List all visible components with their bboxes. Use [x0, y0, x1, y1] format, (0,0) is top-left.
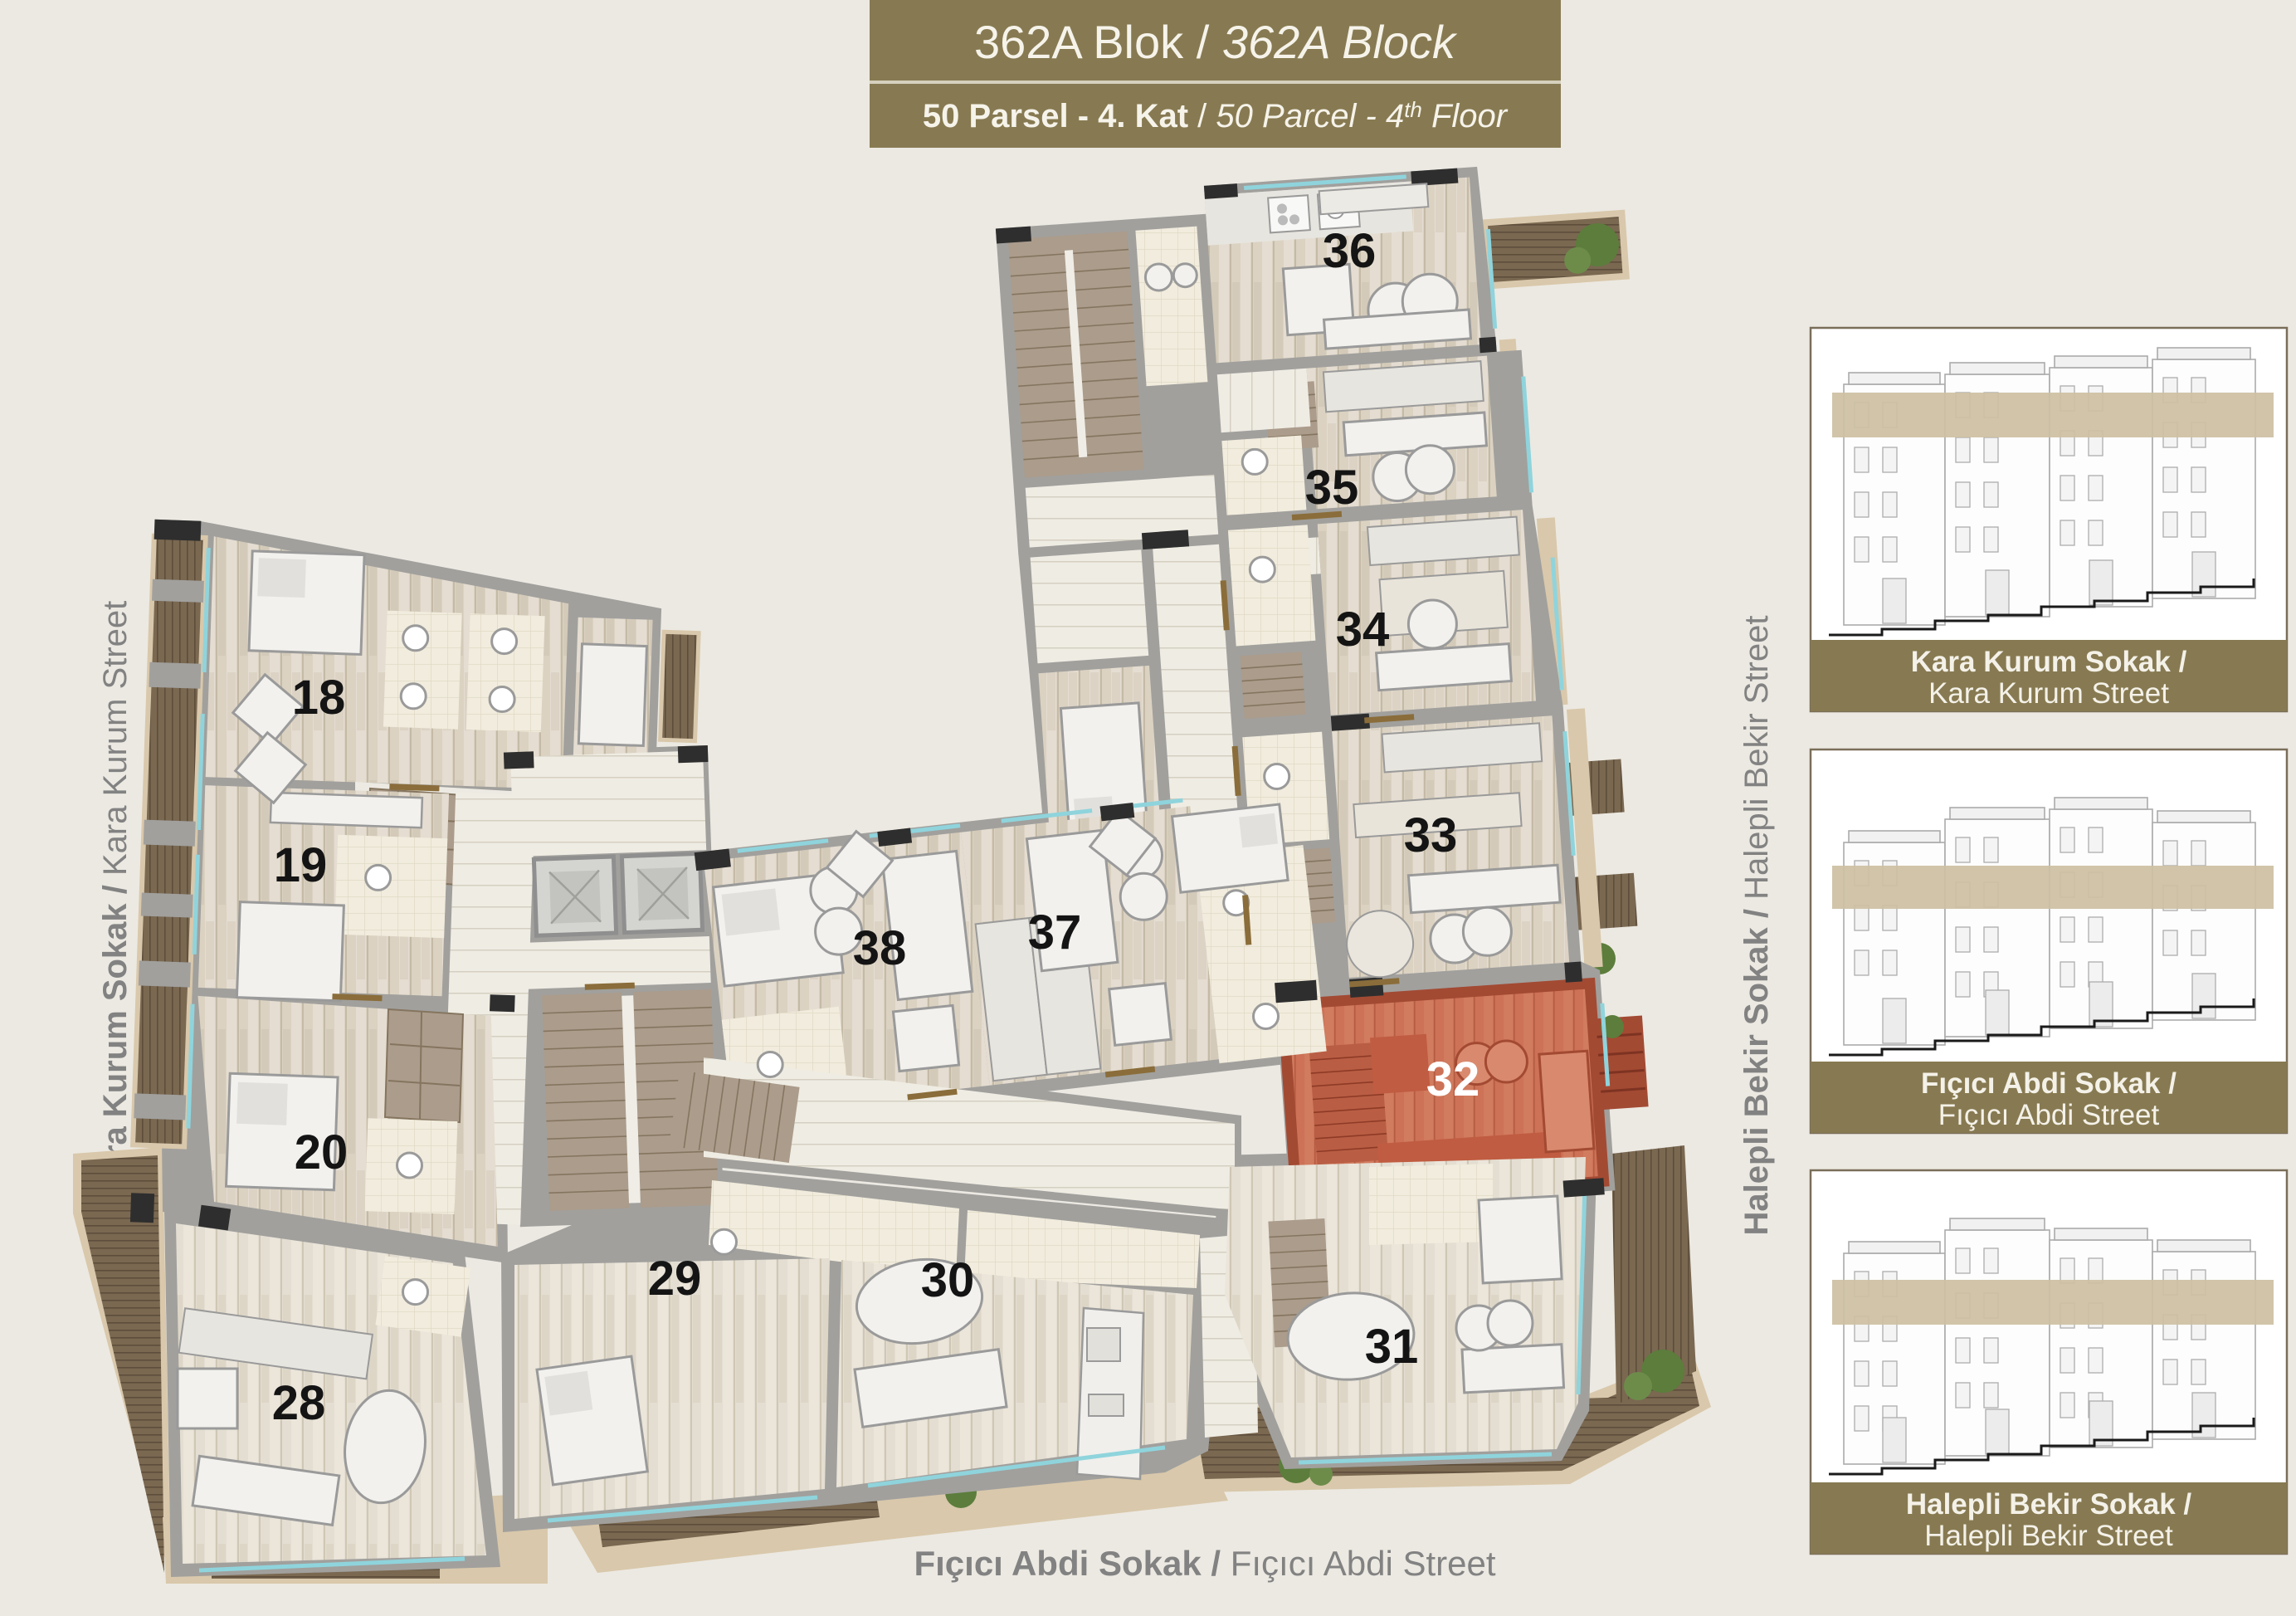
svg-text:Halepli Bekir Sokak / Halepli: Halepli Bekir Sokak / Halepli Bekir Stre…: [1738, 615, 1775, 1235]
svg-text:18: 18: [292, 671, 346, 725]
svg-text:Kara Kurum Sokak /: Kara Kurum Sokak /: [1911, 646, 2187, 678]
svg-text:30: 30: [921, 1253, 975, 1307]
svg-text:37: 37: [1028, 906, 1082, 959]
svg-text:Fıçıcı Abdi Sokak / Fıçıcı Abd: Fıçıcı Abdi Sokak / Fıçıcı Abdi Street: [914, 1544, 1495, 1583]
svg-text:Halepli Bekir Sokak /: Halepli Bekir Sokak /: [1906, 1488, 2192, 1521]
svg-text:19: 19: [274, 838, 328, 892]
svg-text:28: 28: [272, 1376, 326, 1430]
svg-text:29: 29: [648, 1252, 702, 1306]
svg-text:20: 20: [295, 1125, 349, 1179]
svg-text:36: 36: [1323, 224, 1377, 278]
svg-text:Fıçıcı Abdi Street: Fıçıcı Abdi Street: [1938, 1099, 2160, 1131]
svg-text:33: 33: [1404, 808, 1458, 862]
svg-text:31: 31: [1365, 1320, 1419, 1374]
svg-text:Halepli Bekir Street: Halepli Bekir Street: [1924, 1520, 2173, 1552]
svg-text:38: 38: [853, 921, 907, 975]
svg-text:Kara Kurum Sokak / Kara Kurum: Kara Kurum Sokak / Kara Kurum Street: [97, 601, 134, 1201]
svg-text:34: 34: [1336, 603, 1390, 657]
svg-text:362A Blok / 362A Block: 362A Blok / 362A Block: [974, 16, 1458, 68]
svg-text:32: 32: [1426, 1052, 1480, 1106]
svg-text:35: 35: [1305, 461, 1359, 515]
svg-text:Kara Kurum Street: Kara Kurum Street: [1928, 677, 2169, 710]
svg-text:Fıçıcı Abdi Sokak /: Fıçıcı Abdi Sokak /: [1921, 1067, 2177, 1100]
